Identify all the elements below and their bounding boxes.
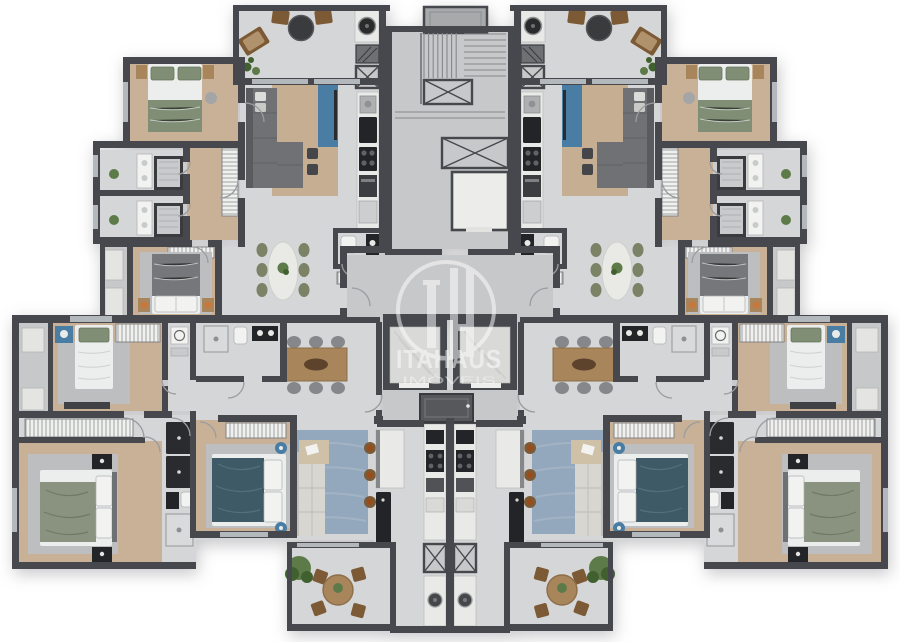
pillow xyxy=(79,328,109,342)
window xyxy=(93,205,98,229)
watermark-brand: ITAHAUS xyxy=(396,344,502,374)
blanket xyxy=(152,254,200,296)
sliding-door xyxy=(297,543,359,547)
machine-room xyxy=(452,172,508,230)
pillow xyxy=(151,67,174,80)
dishwasher-icon xyxy=(359,201,377,223)
headboard xyxy=(112,472,117,542)
appliance xyxy=(426,498,444,512)
upper-dining xyxy=(257,242,310,300)
floor-plan-canvas: ITAHAUS IMÓVEIS IH xyxy=(0,0,900,642)
oven-icon xyxy=(426,478,444,492)
door-gap xyxy=(466,227,492,232)
pillow xyxy=(96,476,112,506)
lounger xyxy=(105,288,123,318)
window xyxy=(93,155,98,177)
vanity xyxy=(137,154,152,188)
party-wall xyxy=(446,418,454,633)
desk xyxy=(64,402,110,409)
window xyxy=(123,82,128,122)
lower-dining xyxy=(285,336,347,394)
window xyxy=(220,532,268,537)
sliding-door xyxy=(252,79,308,84)
closet-wardrobe xyxy=(25,419,133,437)
chair xyxy=(287,336,301,348)
fridge-icon xyxy=(359,117,377,143)
terrace-chair xyxy=(271,9,290,25)
toilet-icon xyxy=(234,327,247,344)
lower-master-bedroom xyxy=(28,454,118,562)
shelf xyxy=(171,348,188,356)
balcony-bench xyxy=(22,328,44,352)
nightstand xyxy=(136,65,147,79)
lower-utility xyxy=(166,422,194,546)
oven-icon xyxy=(359,175,377,197)
wardrobe xyxy=(226,423,286,438)
upper-living xyxy=(246,82,338,196)
plant-icon xyxy=(109,215,119,225)
cooktop-icon xyxy=(426,450,444,472)
watermark-tagline: IMÓVEIS xyxy=(402,374,496,387)
terrace-chair xyxy=(314,9,333,25)
balcony-bench xyxy=(22,388,44,410)
lower-laundry xyxy=(171,327,188,356)
wardrobe xyxy=(222,148,238,216)
platter xyxy=(304,359,328,371)
side-table xyxy=(307,148,318,159)
pillow xyxy=(255,92,266,101)
side-table xyxy=(307,164,318,175)
window xyxy=(70,316,112,322)
vanity xyxy=(252,326,278,341)
lamp-icon xyxy=(205,302,212,309)
appliance xyxy=(426,430,444,444)
pillow xyxy=(264,492,282,522)
cooktop-icon xyxy=(359,147,377,171)
vanity xyxy=(166,492,179,509)
kitchen-island xyxy=(376,430,404,488)
pillow xyxy=(96,508,112,538)
wardrobe xyxy=(116,324,160,342)
blanket xyxy=(148,100,202,132)
nightstand xyxy=(203,65,214,79)
pillow xyxy=(178,67,201,80)
lounger xyxy=(105,250,123,280)
lamp-icon xyxy=(141,302,148,309)
washer-icon xyxy=(171,327,188,344)
plant-icon xyxy=(109,169,119,179)
window xyxy=(12,488,17,532)
pouf xyxy=(205,92,217,104)
sliding-door xyxy=(314,79,360,84)
lobby-duct xyxy=(420,394,473,422)
charcoal-cabinet xyxy=(356,45,379,63)
lower-living xyxy=(292,430,376,536)
pillow xyxy=(264,460,282,490)
chair xyxy=(257,243,268,257)
vanity xyxy=(137,201,152,235)
tv-icon xyxy=(334,90,337,140)
floor-plan-svg: ITAHAUS IMÓVEIS IH xyxy=(0,0,900,642)
